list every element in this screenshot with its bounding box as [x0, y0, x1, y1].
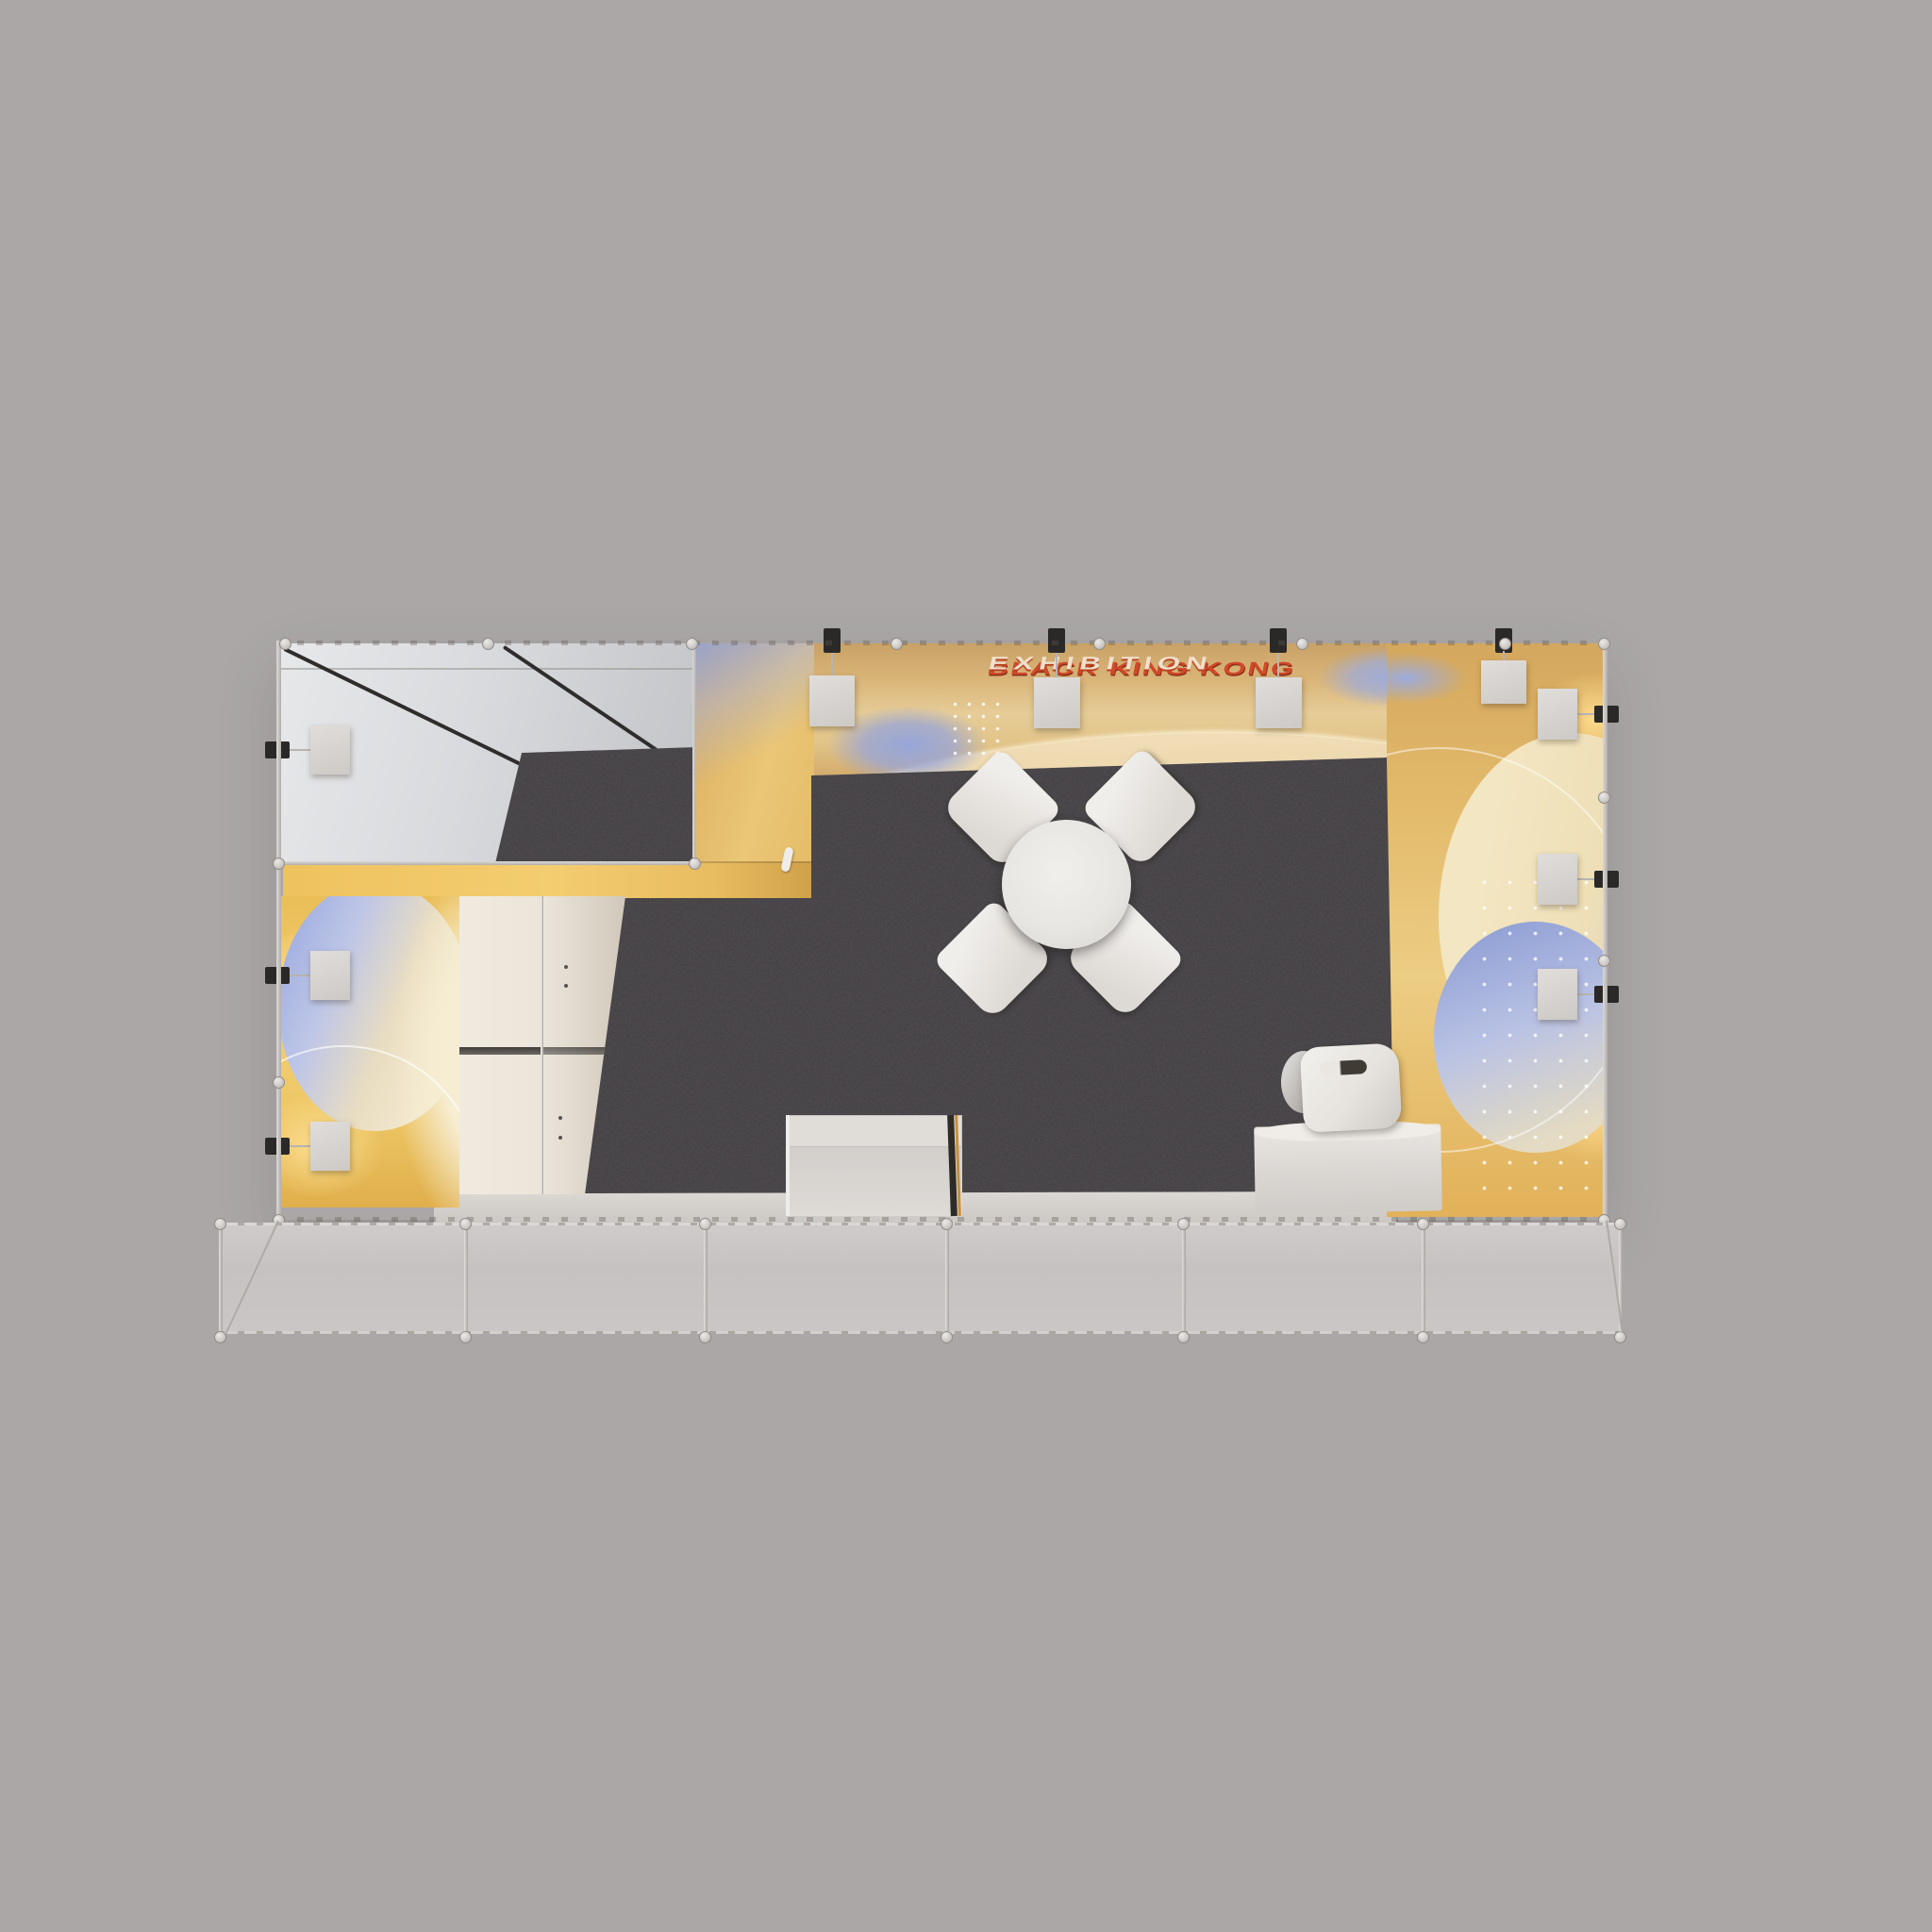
hanging-light-panel	[1538, 689, 1577, 740]
fascia-connector	[699, 1218, 711, 1230]
reception-counter	[789, 1115, 962, 1216]
frame-connector	[689, 858, 701, 870]
hanging-light-panel	[310, 1122, 350, 1171]
device-handle-slot	[1320, 1059, 1368, 1076]
light-stem	[1056, 653, 1058, 679]
frame-connector	[1499, 638, 1511, 650]
fascia-connector	[1417, 1218, 1429, 1230]
fascia-connector	[1177, 1331, 1190, 1343]
hanging-light-panel	[1538, 969, 1577, 1020]
cabinet-handle	[564, 984, 568, 988]
fascia-post	[464, 1223, 468, 1340]
display-pedestal	[1254, 1124, 1442, 1213]
frame-right-beam	[1603, 641, 1607, 1224]
frame-room-bottom-beam	[278, 861, 696, 865]
frame-connector	[273, 858, 285, 870]
fascia-post	[219, 1223, 223, 1340]
fascia-connector	[1177, 1218, 1190, 1230]
hanging-light-panel	[809, 675, 855, 726]
frame-room-right-beam	[692, 643, 696, 866]
frame-connector	[279, 638, 291, 650]
fascia-connector	[1417, 1331, 1429, 1343]
round-table	[1002, 820, 1131, 949]
front-fascia	[219, 1223, 1623, 1334]
fascia-top-edge	[219, 1223, 1623, 1225]
fascia-connector	[214, 1218, 226, 1230]
hanging-light-panel	[1256, 677, 1302, 728]
fascia-connector	[1614, 1218, 1626, 1230]
left-wall-graphic	[280, 896, 459, 1207]
fascia-post	[1422, 1223, 1425, 1340]
fascia-connector	[459, 1218, 472, 1230]
light-stem	[290, 974, 312, 976]
hanging-light-panel	[310, 951, 350, 1000]
light-stem	[290, 749, 312, 751]
frame-connector	[1598, 955, 1610, 967]
fascia-connector	[941, 1331, 953, 1343]
counter-edge	[786, 1115, 790, 1216]
fascia-connector	[699, 1331, 711, 1343]
right-wall-dot-pattern	[1472, 870, 1594, 1191]
cabinet-handle	[558, 1136, 562, 1140]
hanging-light-panel	[310, 725, 350, 774]
frame-connector	[891, 638, 903, 650]
hanging-light-panel	[1481, 660, 1526, 704]
light-stem	[1277, 653, 1279, 679]
fascia-post	[945, 1223, 949, 1340]
counter-top	[789, 1115, 962, 1147]
cabinet-handle	[564, 965, 568, 969]
booth-top-view-render: BLACK KING KONG EXHIBITION	[0, 0, 1932, 1932]
fascia-post	[704, 1223, 708, 1340]
frame-connector	[1598, 638, 1610, 650]
frame-connector	[1598, 791, 1610, 804]
counter-front	[789, 1147, 962, 1216]
frame-connector	[1093, 638, 1106, 650]
cabinet-handle	[558, 1116, 562, 1120]
frame-connector	[686, 638, 698, 650]
fascia-connector	[941, 1218, 953, 1230]
light-stem	[290, 1145, 312, 1147]
fascia-connector	[459, 1331, 472, 1343]
fascia-bottom-edge	[219, 1331, 1623, 1334]
frame-top-beam	[278, 641, 1608, 645]
light-stem	[831, 653, 833, 677]
hanging-light-panel	[1538, 854, 1577, 905]
fascia-post	[1182, 1223, 1186, 1340]
hanging-light-panel	[1034, 677, 1080, 728]
frame-left-beam	[276, 641, 281, 1224]
frame-connector	[482, 638, 494, 650]
display-device	[1300, 1042, 1403, 1132]
storage-room-carpet	[495, 747, 695, 863]
frame-connector	[273, 1076, 285, 1089]
frame-connector	[1296, 638, 1308, 650]
